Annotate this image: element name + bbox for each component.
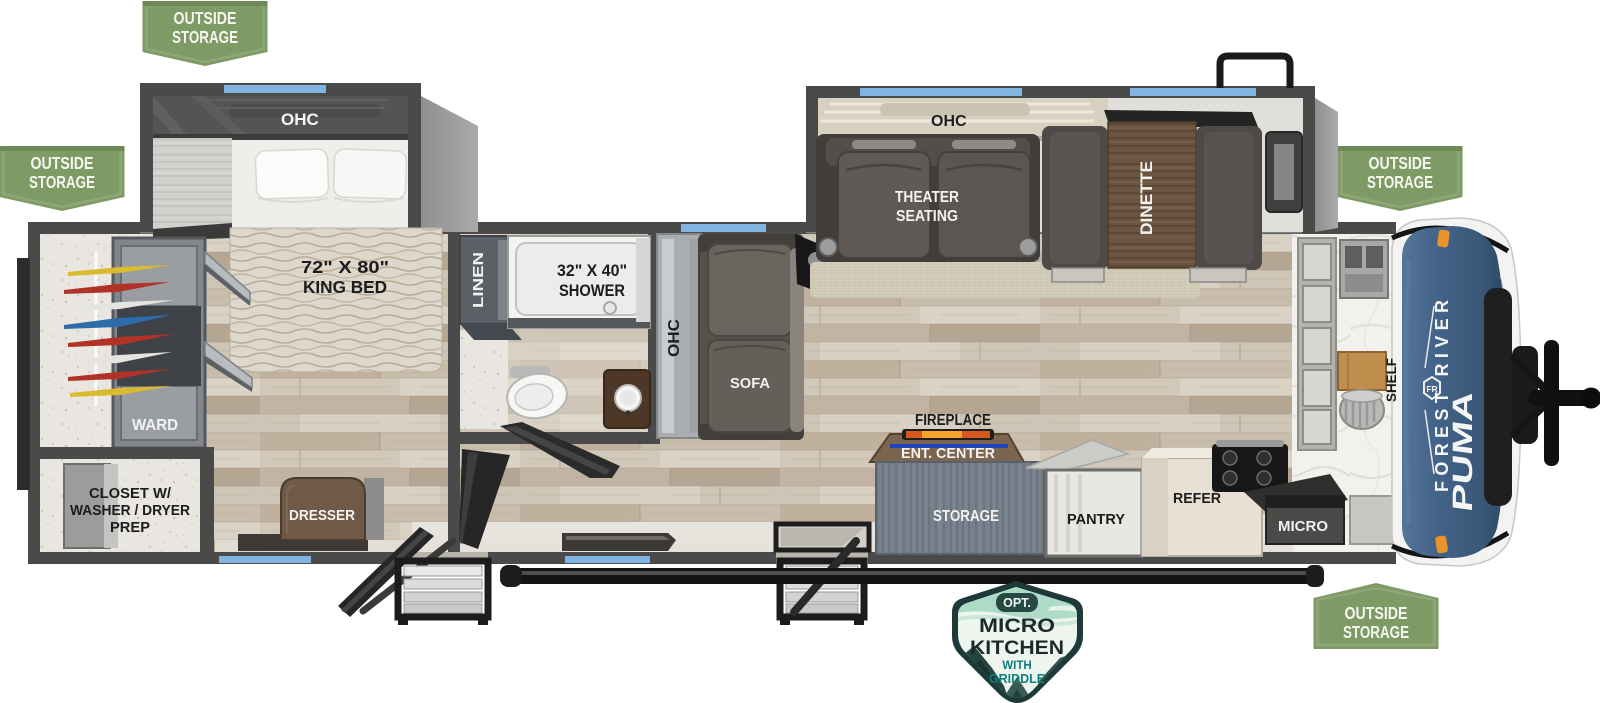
svg-text:GRIDDLE: GRIDDLE	[989, 671, 1045, 686]
svg-text:STORAGE: STORAGE	[1343, 622, 1409, 642]
svg-text:SOFA: SOFA	[730, 376, 771, 392]
svg-text:STORAGE: STORAGE	[172, 27, 238, 47]
svg-text:THEATER: THEATER	[895, 189, 959, 206]
svg-text:LINEN: LINEN	[470, 252, 487, 308]
svg-text:STORAGE: STORAGE	[29, 172, 95, 192]
svg-text:MICRO: MICRO	[979, 615, 1055, 637]
svg-text:OUTSIDE: OUTSIDE	[1369, 153, 1432, 173]
svg-text:REFER: REFER	[1173, 491, 1222, 507]
svg-text:ENT. CENTER: ENT. CENTER	[901, 445, 995, 462]
svg-text:SHELF: SHELF	[1384, 358, 1399, 402]
svg-text:WASHER / DRYER: WASHER / DRYER	[70, 503, 190, 519]
svg-text:PANTRY: PANTRY	[1067, 512, 1125, 528]
svg-text:OHC: OHC	[666, 319, 683, 357]
svg-text:KING BED: KING BED	[303, 277, 387, 297]
svg-text:PREP: PREP	[110, 520, 150, 536]
svg-text:OUTSIDE: OUTSIDE	[1345, 603, 1408, 623]
svg-text:PUMA: PUMA	[1447, 389, 1478, 513]
svg-text:WARD: WARD	[132, 417, 178, 434]
svg-text:STORAGE: STORAGE	[1367, 172, 1433, 192]
svg-text:MICRO: MICRO	[1278, 519, 1328, 535]
svg-text:STORAGE: STORAGE	[933, 508, 999, 525]
svg-text:DRESSER: DRESSER	[289, 508, 355, 524]
svg-text:SHOWER: SHOWER	[559, 282, 625, 300]
svg-text:OUTSIDE: OUTSIDE	[174, 8, 237, 28]
svg-text:OPT.: OPT.	[1003, 596, 1031, 610]
svg-text:32" X 40": 32" X 40"	[557, 262, 627, 280]
svg-text:OHC: OHC	[931, 113, 967, 130]
svg-text:SEATING: SEATING	[896, 208, 958, 225]
svg-text:72" X 80": 72" X 80"	[301, 257, 389, 277]
svg-text:OHC: OHC	[281, 110, 319, 129]
svg-text:FIREPLACE: FIREPLACE	[915, 412, 991, 429]
svg-text:CLOSET W/: CLOSET W/	[89, 486, 171, 502]
svg-text:KITCHEN: KITCHEN	[970, 637, 1064, 659]
svg-text:OUTSIDE: OUTSIDE	[31, 153, 94, 173]
svg-text:DINETTE: DINETTE	[1138, 161, 1156, 235]
